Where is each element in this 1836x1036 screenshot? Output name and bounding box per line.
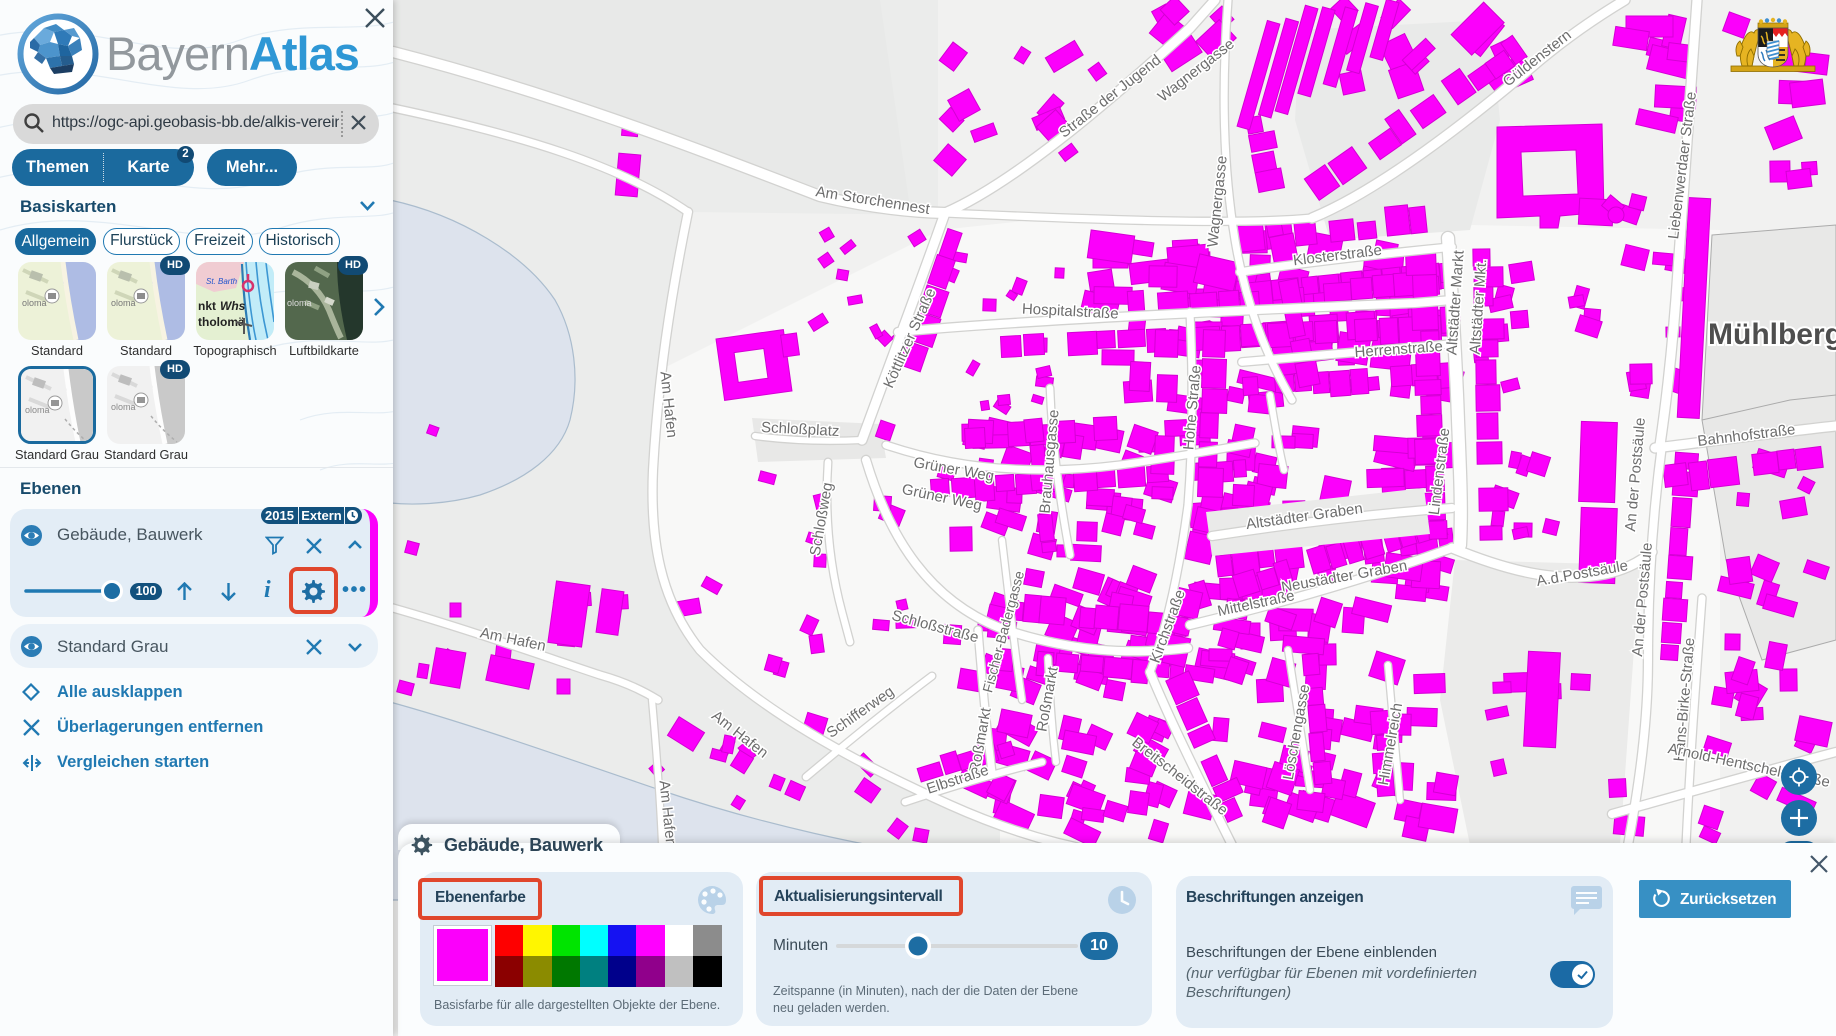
svg-text:oloma: oloma [22, 298, 47, 308]
svg-text:St. Barth: St. Barth [206, 277, 238, 286]
svg-text:Whs: Whs [220, 299, 246, 313]
svg-text:oloma: oloma [287, 298, 312, 308]
svg-text:oloma: oloma [111, 402, 136, 412]
svg-text:oloma: oloma [25, 405, 50, 415]
svg-text:nkt: nkt [198, 299, 216, 313]
svg-text:oloma: oloma [111, 298, 136, 308]
svg-text:Mühlberge: Mühlberge [1708, 318, 1836, 351]
